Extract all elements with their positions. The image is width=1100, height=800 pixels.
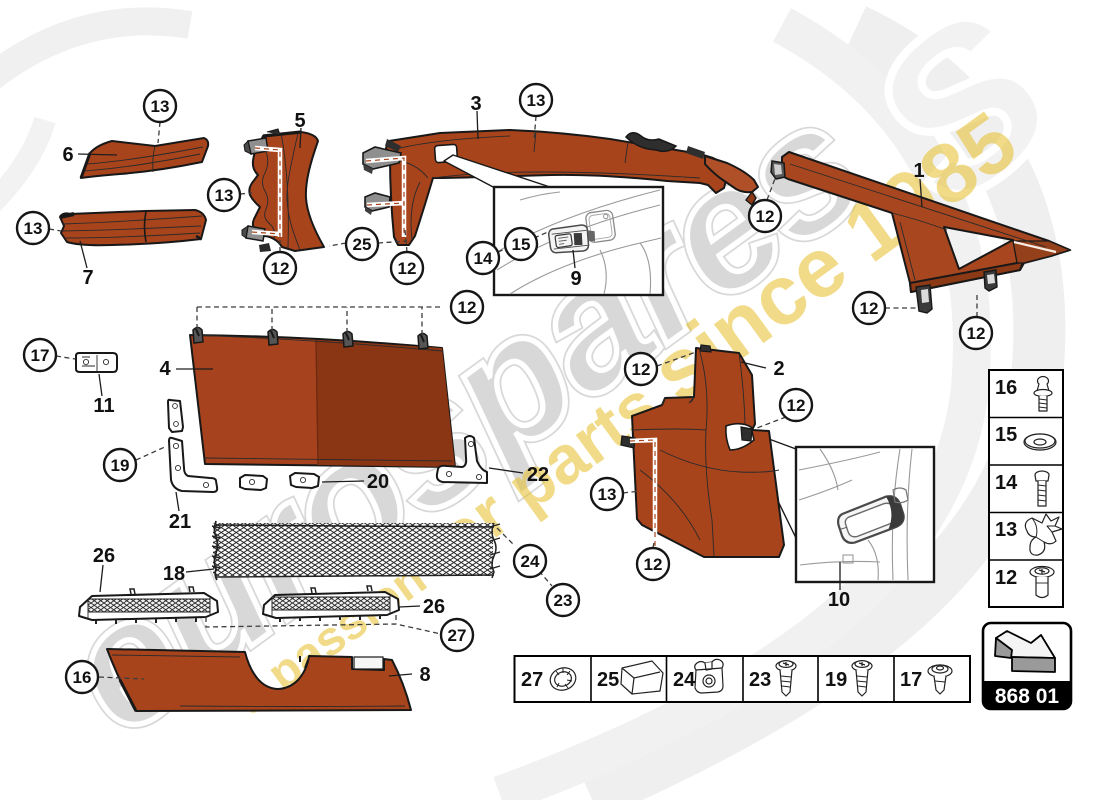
svg-text:8: 8 [419, 664, 430, 686]
svg-text:6: 6 [62, 144, 73, 166]
svg-text:17: 17 [31, 346, 50, 365]
svg-text:25: 25 [353, 235, 372, 254]
svg-text:7: 7 [82, 267, 93, 289]
svg-text:868 01: 868 01 [995, 685, 1060, 708]
svg-text:13: 13 [151, 97, 170, 116]
svg-text:12: 12 [787, 396, 806, 415]
svg-text:12: 12 [398, 259, 417, 278]
svg-text:18: 18 [163, 563, 185, 585]
svg-text:16: 16 [995, 377, 1017, 399]
svg-text:17: 17 [900, 669, 922, 691]
svg-text:13: 13 [527, 91, 546, 110]
svg-text:20: 20 [367, 471, 389, 493]
svg-text:13: 13 [215, 186, 234, 205]
svg-text:19: 19 [111, 456, 130, 475]
svg-text:15: 15 [995, 424, 1017, 446]
svg-text:24: 24 [673, 669, 696, 691]
svg-text:5: 5 [294, 110, 305, 132]
svg-text:26: 26 [93, 545, 115, 567]
svg-text:10: 10 [828, 589, 850, 611]
svg-text:26: 26 [423, 596, 445, 618]
svg-text:12: 12 [967, 324, 986, 343]
svg-text:13: 13 [995, 519, 1017, 541]
svg-text:21: 21 [169, 511, 191, 533]
svg-text:9: 9 [570, 268, 581, 290]
svg-text:14: 14 [995, 472, 1018, 494]
svg-text:27: 27 [448, 626, 467, 645]
svg-text:12: 12 [644, 555, 663, 574]
svg-text:22: 22 [527, 464, 549, 486]
svg-text:4: 4 [159, 358, 171, 380]
svg-text:11: 11 [93, 395, 114, 417]
svg-text:23: 23 [749, 669, 771, 691]
svg-text:12: 12 [995, 567, 1017, 589]
svg-text:12: 12 [632, 360, 651, 379]
svg-text:12: 12 [860, 299, 879, 318]
svg-text:2: 2 [773, 358, 784, 380]
svg-text:13: 13 [598, 485, 617, 504]
svg-text:13: 13 [24, 219, 43, 238]
svg-text:25: 25 [597, 669, 619, 691]
svg-text:12: 12 [756, 207, 775, 226]
svg-text:14: 14 [474, 249, 493, 268]
svg-text:16: 16 [73, 668, 92, 687]
svg-text:3: 3 [470, 93, 481, 115]
svg-text:12: 12 [458, 298, 477, 317]
svg-text:27: 27 [521, 669, 543, 691]
svg-text:1: 1 [913, 160, 924, 182]
svg-text:19: 19 [825, 669, 847, 691]
svg-text:24: 24 [521, 552, 540, 571]
svg-text:15: 15 [512, 235, 531, 254]
svg-text:23: 23 [554, 591, 573, 610]
svg-text:12: 12 [271, 259, 290, 278]
